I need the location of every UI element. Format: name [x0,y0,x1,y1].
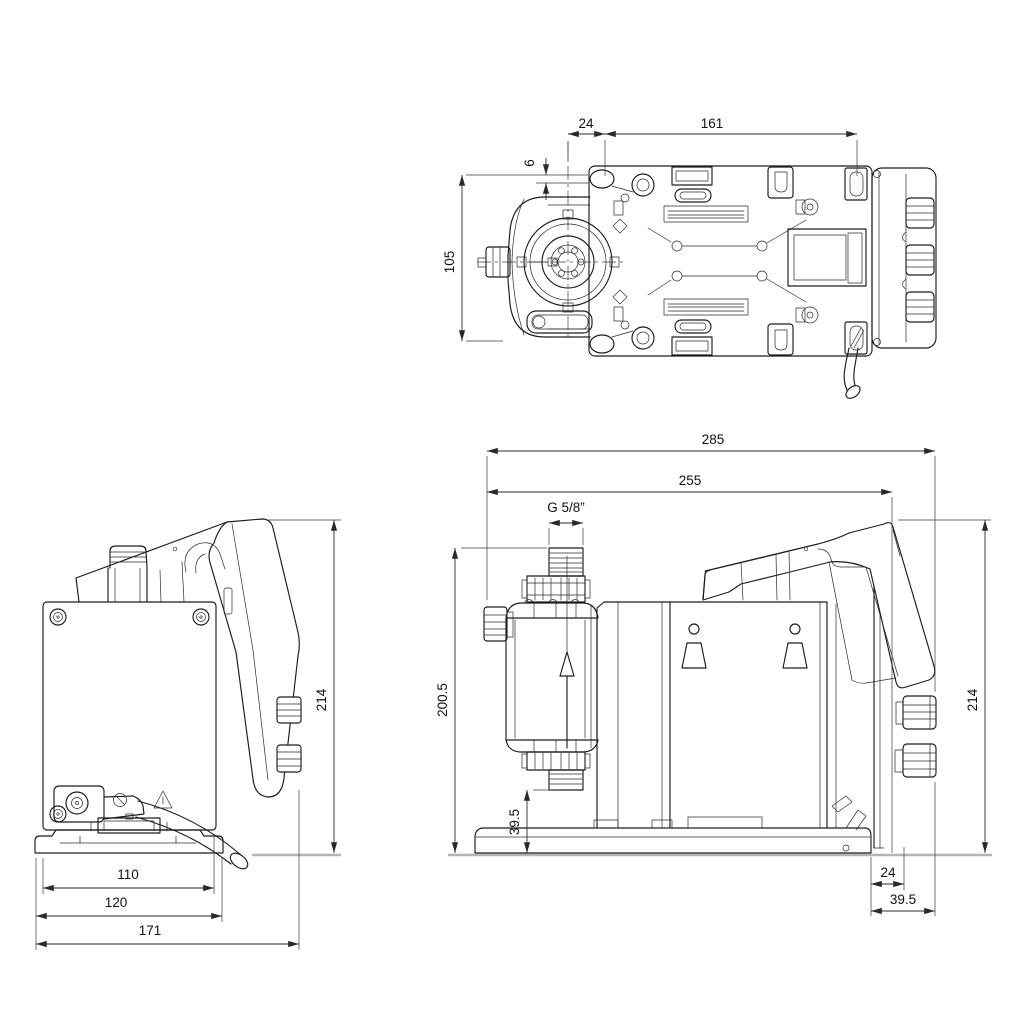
dim-top-6: 6 [522,159,537,167]
dim-side-285: 285 [702,432,725,447]
side-view-dosing-head [484,548,598,790]
dim-top-24: 24 [578,116,594,131]
top-view: 24 161 6 105 [442,116,936,401]
dim-side-39-5-bottom: 39.5 [890,892,916,907]
connection-knobs-top-view [903,198,935,322]
side-view-base [475,796,871,853]
dim-top-105: 105 [442,251,457,274]
side-view-knobs [895,696,936,777]
dim-rear-171: 171 [139,923,162,938]
technical-drawing: 24 161 6 105 [0,0,1024,1024]
dim-side-200-5: 200.5 [435,683,450,717]
rear-view-top [76,522,227,602]
dim-top-161: 161 [701,116,724,131]
side-view-body [597,565,884,848]
rear-view: 214 110 120 171 [35,519,341,950]
dim-side-255: 255 [679,473,702,488]
top-view-mounting-plate [589,166,872,356]
dim-side-39-5-left: 39.5 [507,809,522,835]
top-view-control-end [844,168,936,401]
side-view-control-panel [703,523,935,688]
dim-rear-214: 214 [314,688,329,711]
side-view: 285 255 G 5/8” 200.5 39.5 214 24 39.5 [435,432,992,916]
dim-side-214: 214 [965,688,980,711]
flow-direction-arrow [560,556,574,748]
dim-side-24: 24 [880,865,896,880]
dim-rear-120: 120 [105,895,128,910]
dim-side-thread: G 5/8” [547,500,585,515]
dim-rear-110: 110 [117,867,139,882]
top-view-motor [478,197,619,337]
